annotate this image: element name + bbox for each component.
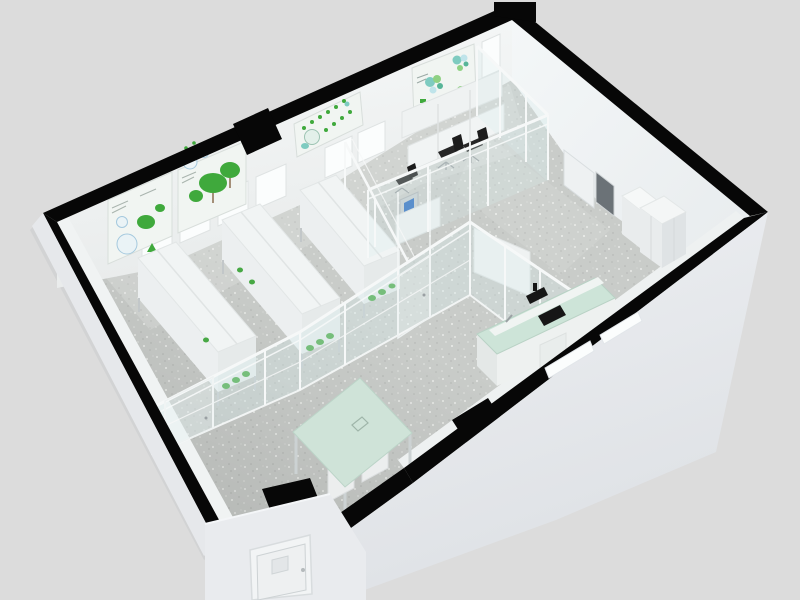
- petri-dish-icon: [305, 130, 320, 145]
- lab-floorplan-render: [0, 0, 800, 600]
- petri-dish-icon: [117, 234, 137, 254]
- door-handle-icon: [205, 417, 208, 420]
- door-handle-icon: [423, 294, 426, 297]
- microscope-arm: [533, 283, 537, 291]
- render-canvas: [0, 0, 800, 600]
- petri-dish-icon: [117, 217, 128, 228]
- door-knob-icon: [301, 568, 305, 572]
